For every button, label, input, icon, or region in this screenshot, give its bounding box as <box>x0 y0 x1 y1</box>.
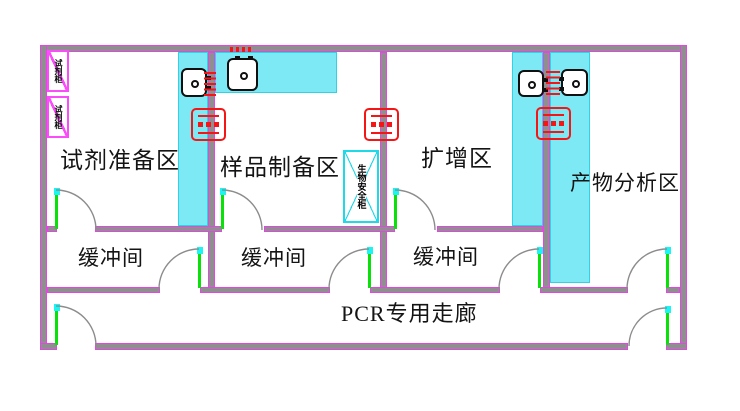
transfer-window-line <box>371 132 392 134</box>
vent-marker-icon <box>546 71 560 98</box>
door-swing-arc <box>56 190 96 230</box>
door-leaf <box>666 248 669 288</box>
door-hinge-cap-icon <box>197 247 203 254</box>
transfer-window-line <box>198 115 219 117</box>
instrument <box>561 69 588 96</box>
instrument-tab-icon <box>235 56 240 60</box>
transfer-window-line <box>543 131 564 133</box>
door-hinge-cap-icon <box>54 304 60 311</box>
door-leaf <box>394 189 397 229</box>
instrument-circle-icon <box>572 80 580 88</box>
reagent-cabinet-label: 试剂柜 <box>54 105 62 129</box>
transfer-window-dot <box>559 121 564 126</box>
biosafety-cabinet: 生物安全柜 <box>343 150 379 223</box>
room-label-sample-prep: 样品制备区 <box>220 155 340 181</box>
instrument-tab-icon <box>248 56 253 60</box>
door-leaf <box>368 248 371 288</box>
reagent-cabinet-label: 试剂柜 <box>54 59 62 83</box>
wall-segment <box>40 45 687 52</box>
room-label-buffer-3: 缓冲间 <box>413 245 479 269</box>
wall-segment <box>95 226 222 232</box>
wall-segment <box>264 226 395 232</box>
vent-marker-icon <box>204 72 216 99</box>
transfer-window-dot <box>387 122 392 127</box>
room-label-product-analysis: 产物分析区 <box>570 171 680 195</box>
room-label-buffer-1: 缓冲间 <box>78 246 144 270</box>
wall-segment <box>540 287 628 293</box>
door-leaf <box>221 189 224 229</box>
transfer-window-dot <box>543 121 548 126</box>
door-swing-arc <box>395 190 435 230</box>
door-swing-arc <box>629 308 667 346</box>
wall-segment <box>200 287 330 293</box>
transfer-window-dot <box>214 122 219 127</box>
transfer-window-icon <box>364 108 399 141</box>
transfer-window-line <box>371 115 392 117</box>
door-swing-arc <box>159 249 199 289</box>
instrument-circle-icon <box>191 80 199 88</box>
floor-plan: 试剂柜试剂柜生物安全柜试剂准备区样品制备区扩增区产物分析区缓冲间缓冲间缓冲间PC… <box>0 0 740 411</box>
wall-segment <box>380 52 387 293</box>
door-swing-arc <box>56 306 96 346</box>
wall-segment <box>666 343 687 350</box>
door-hinge-cap-icon <box>54 188 60 195</box>
transfer-window-dot <box>551 121 556 126</box>
door-swing-arc <box>627 249 667 289</box>
room-label-buffer-2: 缓冲间 <box>241 246 307 270</box>
biosafety-cabinet-label: 生物安全柜 <box>357 162 366 211</box>
transfer-window-icon <box>536 107 571 140</box>
door-hinge-cap-icon <box>393 188 399 195</box>
transfer-window-line <box>543 114 564 116</box>
instrument-circle-icon <box>240 72 248 80</box>
wall-segment <box>40 45 47 350</box>
transfer-window-dot <box>379 122 384 127</box>
transfer-window-icon <box>191 108 226 141</box>
vent-marker-icon <box>230 47 253 52</box>
door-hinge-cap-icon <box>220 188 226 195</box>
wall-segment <box>95 343 628 350</box>
door-swing-arc <box>499 249 539 289</box>
instrument-circle-icon <box>528 81 536 89</box>
room-label-amplification: 扩增区 <box>421 146 493 172</box>
wall-segment <box>437 226 543 232</box>
wall-segment <box>680 45 687 350</box>
door-leaf <box>55 305 58 345</box>
door-leaf <box>55 189 58 229</box>
door-hinge-cap-icon <box>665 247 671 254</box>
door-hinge-cap-icon <box>367 247 373 254</box>
room-label-corridor: PCR专用走廊 <box>341 301 478 326</box>
transfer-window-line <box>198 132 219 134</box>
transfer-window-dot <box>206 122 211 127</box>
door-hinge-cap-icon <box>537 247 543 254</box>
reagent-cabinet: 试剂柜 <box>47 50 69 92</box>
door-hinge-cap-icon <box>665 306 671 313</box>
instrument <box>227 58 258 91</box>
transfer-window-dot <box>198 122 203 127</box>
door-leaf <box>538 248 541 288</box>
room-label-reagent-prep: 试剂准备区 <box>60 148 180 174</box>
door-leaf <box>198 248 201 288</box>
door-swing-arc <box>222 190 262 230</box>
transfer-window-dot <box>371 122 376 127</box>
wall-segment <box>370 287 500 293</box>
reagent-cabinet: 试剂柜 <box>47 96 69 138</box>
instrument <box>518 70 544 97</box>
door-swing-arc <box>329 249 369 289</box>
wall-segment <box>47 287 160 293</box>
